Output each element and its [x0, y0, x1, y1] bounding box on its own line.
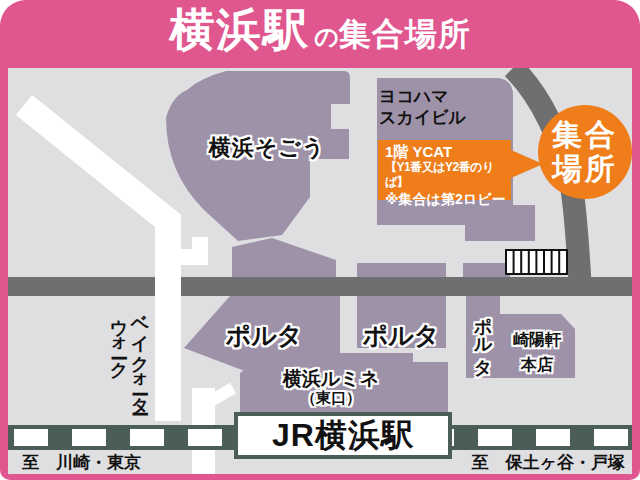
title-bar: 横浜駅 の 集合場所: [0, 0, 640, 68]
porta-1-label: ポルタ: [226, 319, 303, 352]
map-area: 横浜そごう ヨコハマ スカイビル ポルタ ポルタ ポルタ 崎陽軒 本店 横浜ルミ…: [8, 68, 632, 474]
kiyoken-label: 崎陽軒 本店: [513, 327, 561, 377]
ycat-callout-line3: ※集合は第2ロビー: [385, 190, 511, 208]
destination-right-label: 至 保土ヶ谷・戸塚: [472, 451, 625, 474]
sky-building-label-line1: ヨコハマ: [379, 86, 466, 107]
kiyoken-label-line2: 本店: [513, 352, 561, 377]
main-road: [8, 277, 632, 296]
jr-station-label: JR横浜駅: [272, 414, 414, 458]
meeting-place-badge-line1: 集合: [552, 118, 618, 152]
bayquarter-walk-label: ベイクォーター ウォーク: [108, 302, 150, 404]
title-suffix: 集合場所: [339, 13, 471, 57]
kiyoken-label-line1: 崎陽軒: [513, 327, 561, 352]
bus-stop-hatch-lines: [514, 251, 560, 273]
lumine-label-line1: 横浜ルミネ: [283, 369, 379, 388]
title-station: 横浜駅: [169, 0, 310, 60]
bayquarter-walk-line2: ウォーク: [108, 307, 129, 404]
ycat-callout-line1: 1階 YCAT: [385, 143, 511, 160]
lumine-label: 横浜ルミネ （東口）: [283, 369, 379, 407]
porta-3-label: ポルタ: [472, 304, 494, 365]
lumine-label-line2: （東口）: [283, 388, 379, 407]
bayquarter-walk-line1: ベイクォーター: [129, 302, 150, 404]
ycat-callout-line2: 【Y1番又はY2番のりば】: [385, 160, 511, 190]
title-particle: の: [314, 21, 339, 53]
map-card: 横浜駅 の 集合場所: [0, 0, 640, 480]
sky-building-label: ヨコハマ スカイビル: [379, 86, 466, 128]
ycat-callout: 1階 YCAT 【Y1番又はY2番のりば】 ※集合は第2ロビー: [378, 140, 511, 200]
meeting-place-badge: 集合 場所: [538, 105, 632, 199]
meeting-place-badge-line2: 場所: [552, 152, 618, 186]
jr-station-box: JR横浜駅: [234, 412, 452, 459]
sky-building-label-line2: スカイビル: [379, 107, 466, 128]
sogo-label: 横浜そごう: [209, 133, 326, 163]
destination-left-label: 至 川崎・東京: [22, 451, 141, 474]
porta-2-label: ポルタ: [363, 319, 440, 352]
